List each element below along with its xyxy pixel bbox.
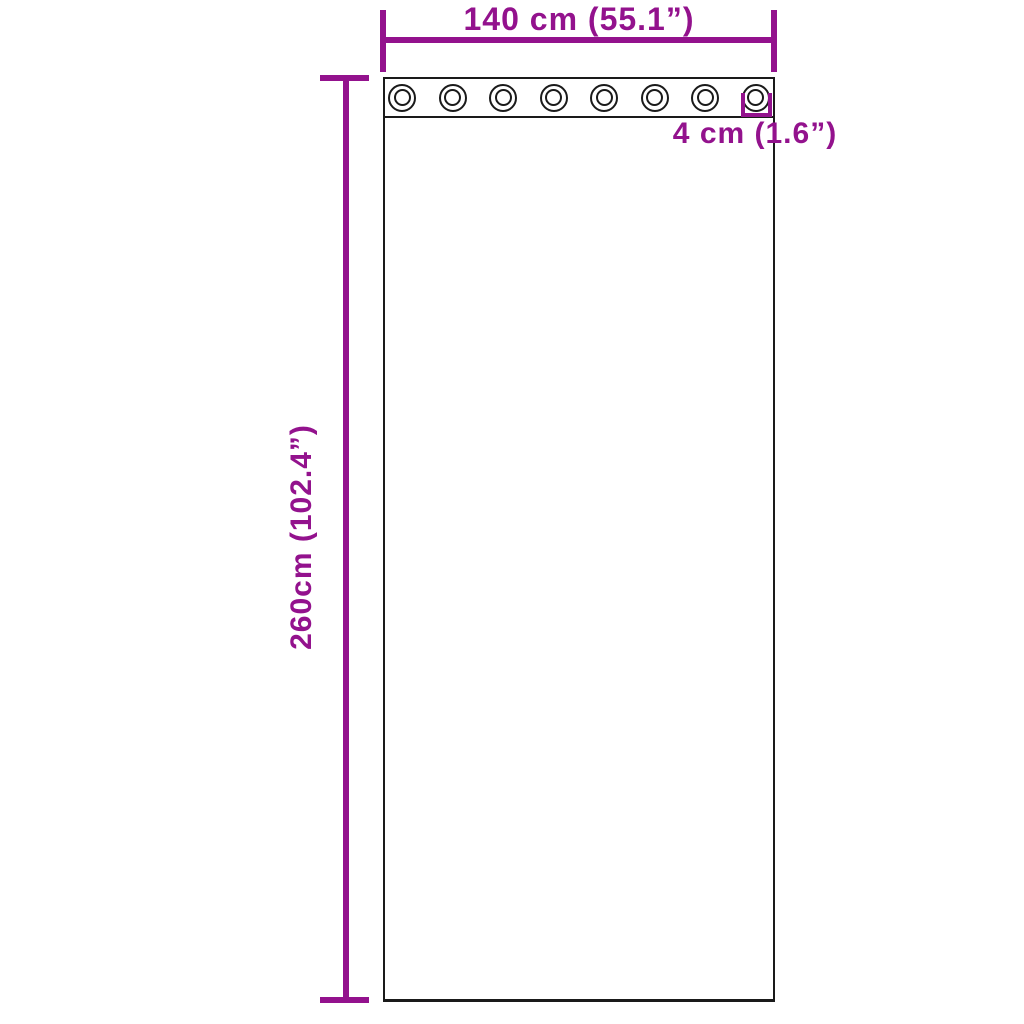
height-dimension-cap-top — [320, 75, 369, 81]
grommet-inner-ring — [697, 89, 714, 106]
height-dimension-line — [343, 78, 349, 1000]
curtain-panel — [383, 77, 775, 1002]
grommet-inner-ring — [646, 89, 663, 106]
grommet-icon — [540, 84, 568, 112]
width-dimension-label: 140 cm (55.1”) — [383, 1, 775, 38]
grommet-inner-ring — [747, 89, 764, 106]
grommet-size-label: 4 cm (1.6”) — [673, 117, 837, 151]
grommet-inner-ring — [394, 89, 411, 106]
grommet-strip — [385, 79, 773, 118]
height-dimension-label: 260cm (102.4”) — [285, 424, 319, 650]
grommet-inner-ring — [444, 89, 461, 106]
grommet-icon — [742, 84, 770, 112]
grommet-inner-ring — [495, 89, 512, 106]
grommet-icon — [489, 84, 517, 112]
height-dimension-cap-bottom — [320, 997, 369, 1003]
grommet-inner-ring — [545, 89, 562, 106]
grommet-inner-ring — [596, 89, 613, 106]
grommet-icon — [388, 84, 416, 112]
grommet-icon — [641, 84, 669, 112]
grommet-icon — [439, 84, 467, 112]
grommet-icon — [691, 84, 719, 112]
diagram-canvas: 140 cm (55.1”) 260cm (102.4”) 4 cm (1.6”… — [0, 0, 1024, 1024]
grommet-icon — [590, 84, 618, 112]
